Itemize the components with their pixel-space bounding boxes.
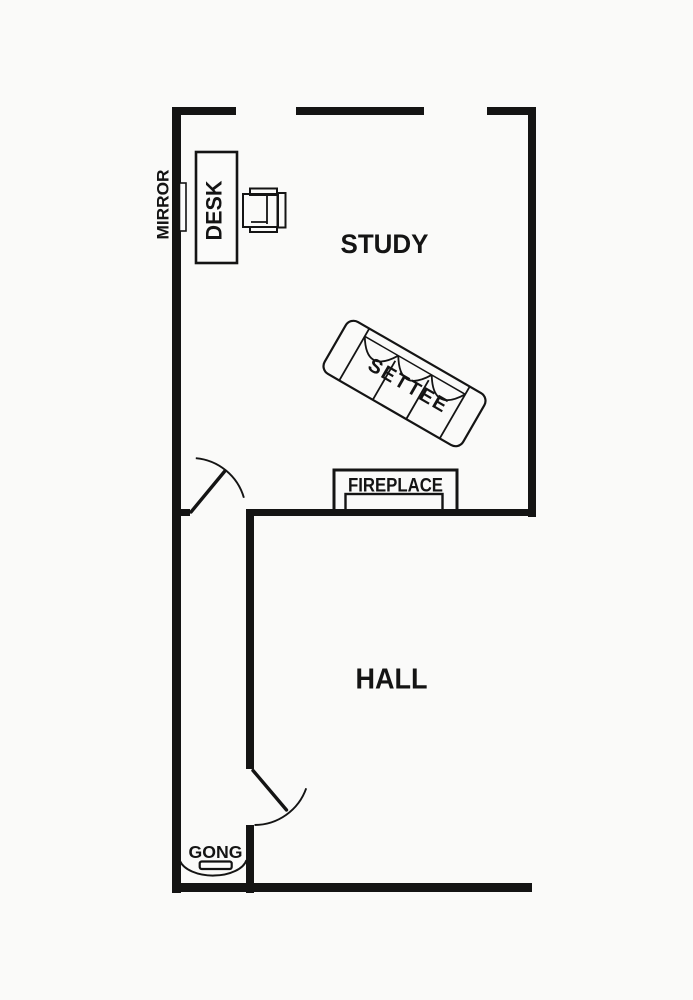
svg-text:FIREPLACE: FIREPLACE: [348, 476, 443, 497]
svg-text:MIRROR: MIRROR: [154, 170, 173, 240]
svg-text:DESK: DESK: [202, 180, 227, 240]
svg-text:GONG: GONG: [189, 842, 243, 862]
svg-text:STUDY: STUDY: [341, 229, 429, 259]
svg-text:HALL: HALL: [356, 664, 428, 696]
